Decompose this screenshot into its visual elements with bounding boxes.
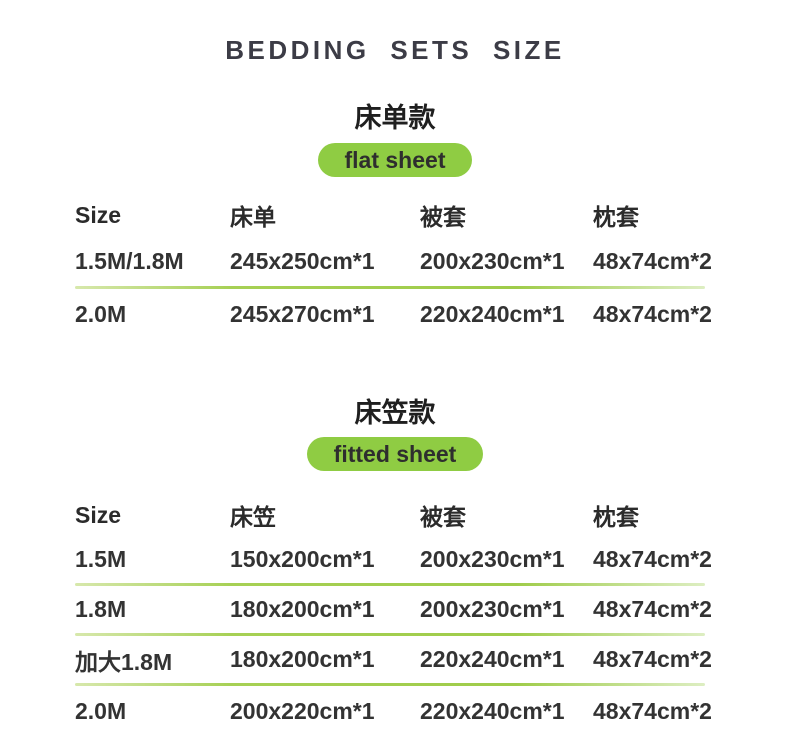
pillow-spec-cell: 48x74cm*2 <box>593 596 730 623</box>
duvet-spec-cell: 200x230cm*1 <box>420 248 593 275</box>
size-cell: 1.5M/1.8M <box>75 248 230 275</box>
size-cell: 1.5M <box>75 546 230 573</box>
size-cell: 2.0M <box>75 698 230 725</box>
fitted-sheet-badge-row: fitted sheet <box>0 437 790 471</box>
table-row: 2.0M 200x220cm*1 220x240cm*1 48x74cm*2 <box>75 686 730 736</box>
duvet-spec-cell: 200x230cm*1 <box>420 546 593 573</box>
table-row: 2.0M 245x270cm*1 220x240cm*1 48x74cm*2 <box>75 289 730 339</box>
page-title: BEDDING SETS SIZE <box>0 0 790 64</box>
flat-sheet-table: Size 床单 被套 枕套 1.5M/1.8M 245x250cm*1 200x… <box>75 194 730 339</box>
duvet-spec-cell: 220x240cm*1 <box>420 301 593 328</box>
fitted-sheet-heading-cn: 床笠款 <box>0 398 790 428</box>
size-header: Size <box>75 502 230 529</box>
table-row: 1.5M/1.8M 245x250cm*1 200x230cm*1 48x74c… <box>75 236 730 286</box>
sheet-spec-cell: 180x200cm*1 <box>230 646 420 673</box>
size-cell: 加大1.8M <box>75 643 230 677</box>
pillow-header: 枕套 <box>593 498 730 532</box>
fitted-sheet-section: 床笠款 fitted sheet Size 床笠 被套 枕套 1.5M 150x… <box>0 398 790 736</box>
table-header-row: Size 床单 被套 枕套 <box>75 194 730 236</box>
table-row: 1.5M 150x200cm*1 200x230cm*1 48x74cm*2 <box>75 536 730 583</box>
sheet-spec-cell: 180x200cm*1 <box>230 596 420 623</box>
flat-sheet-badge: flat sheet <box>318 143 473 177</box>
sheet-spec-cell: 245x270cm*1 <box>230 301 420 328</box>
size-cell: 2.0M <box>75 301 230 328</box>
duvet-spec-cell: 220x240cm*1 <box>420 698 593 725</box>
sheet-spec-cell: 200x220cm*1 <box>230 698 420 725</box>
sheet-header: 床单 <box>230 198 420 232</box>
duvet-spec-cell: 220x240cm*1 <box>420 646 593 673</box>
sheet-spec-cell: 150x200cm*1 <box>230 546 420 573</box>
table-header-row: Size 床笠 被套 枕套 <box>75 494 730 536</box>
bedding-size-chart: BEDDING SETS SIZE 床单款 flat sheet Size 床单… <box>0 0 790 736</box>
pillow-spec-cell: 48x74cm*2 <box>593 248 730 275</box>
pillow-spec-cell: 48x74cm*2 <box>593 698 730 725</box>
fitted-sheet-table: Size 床笠 被套 枕套 1.5M 150x200cm*1 200x230cm… <box>75 494 730 736</box>
flat-sheet-badge-row: flat sheet <box>0 143 790 177</box>
size-header: Size <box>75 202 230 229</box>
pillow-spec-cell: 48x74cm*2 <box>593 301 730 328</box>
duvet-header: 被套 <box>420 198 593 232</box>
fitted-sheet-badge: fitted sheet <box>307 437 484 471</box>
pillow-header: 枕套 <box>593 198 730 232</box>
table-row: 1.8M 180x200cm*1 200x230cm*1 48x74cm*2 <box>75 586 730 633</box>
table-row: 加大1.8M 180x200cm*1 220x240cm*1 48x74cm*2 <box>75 636 730 683</box>
duvet-spec-cell: 200x230cm*1 <box>420 596 593 623</box>
sheet-header: 床笠 <box>230 498 420 532</box>
flat-sheet-heading-cn: 床单款 <box>0 103 790 133</box>
size-cell: 1.8M <box>75 596 230 623</box>
sheet-spec-cell: 245x250cm*1 <box>230 248 420 275</box>
pillow-spec-cell: 48x74cm*2 <box>593 546 730 573</box>
duvet-header: 被套 <box>420 498 593 532</box>
pillow-spec-cell: 48x74cm*2 <box>593 646 730 673</box>
flat-sheet-section: 床单款 flat sheet Size 床单 被套 枕套 1.5M/1.8M 2… <box>0 103 790 339</box>
